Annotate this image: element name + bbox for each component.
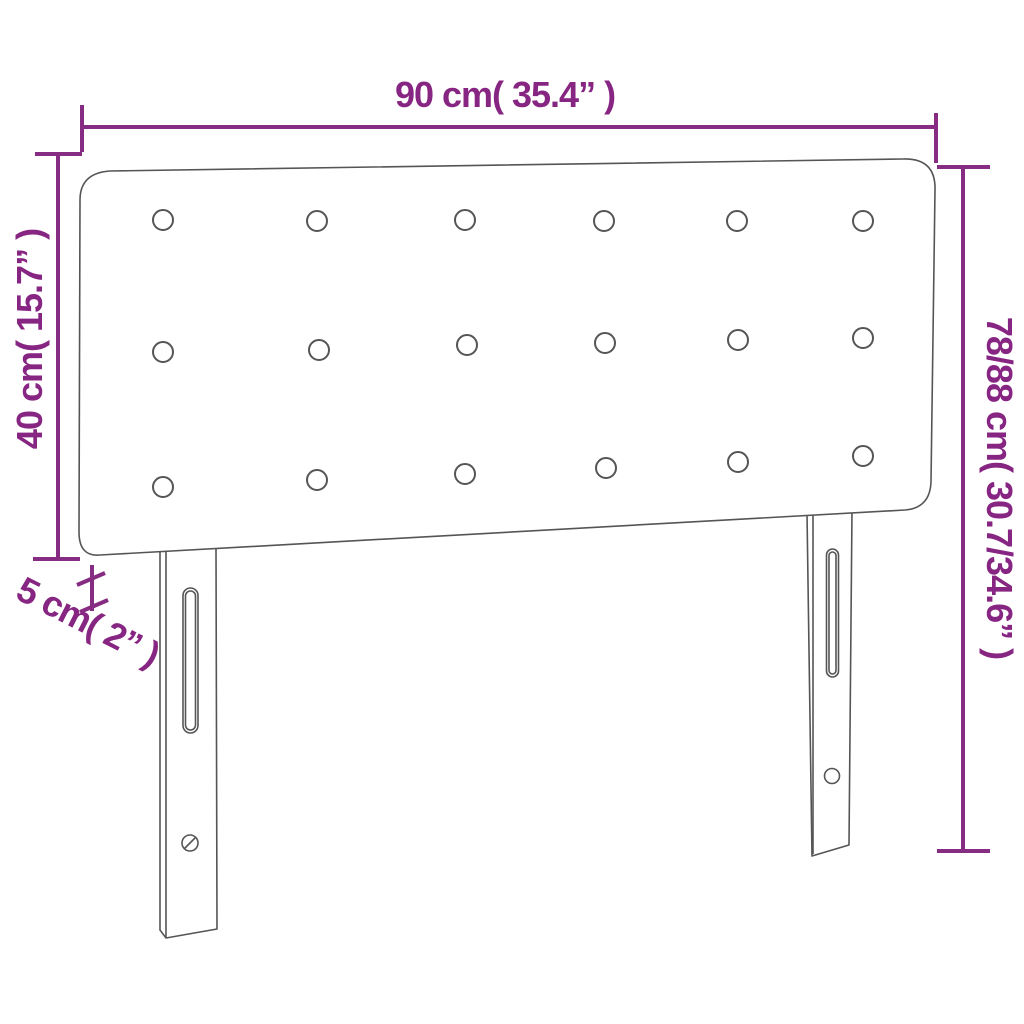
left-leg-screw-slot [185, 838, 196, 849]
right-leg-hole [825, 769, 840, 784]
left-leg [160, 549, 217, 938]
right-leg-slot-inner [829, 552, 836, 674]
headboard-outline-group [79, 159, 935, 938]
total-height-dimension-label: 78/88 cm( 30.7/34.6” ) [978, 317, 1020, 659]
diagram-line-art [0, 0, 1024, 1024]
headboard-dimension-diagram: 90 cm( 35.4” ) 40 cm( 15.7” ) 78/88 cm( … [0, 0, 1024, 1024]
panel-height-dimension-label: 40 cm( 15.7” ) [9, 229, 51, 449]
left-leg-slot-inner [186, 591, 196, 730]
headboard-panel [79, 159, 935, 555]
width-dimension-label: 90 cm( 35.4” ) [395, 74, 615, 116]
